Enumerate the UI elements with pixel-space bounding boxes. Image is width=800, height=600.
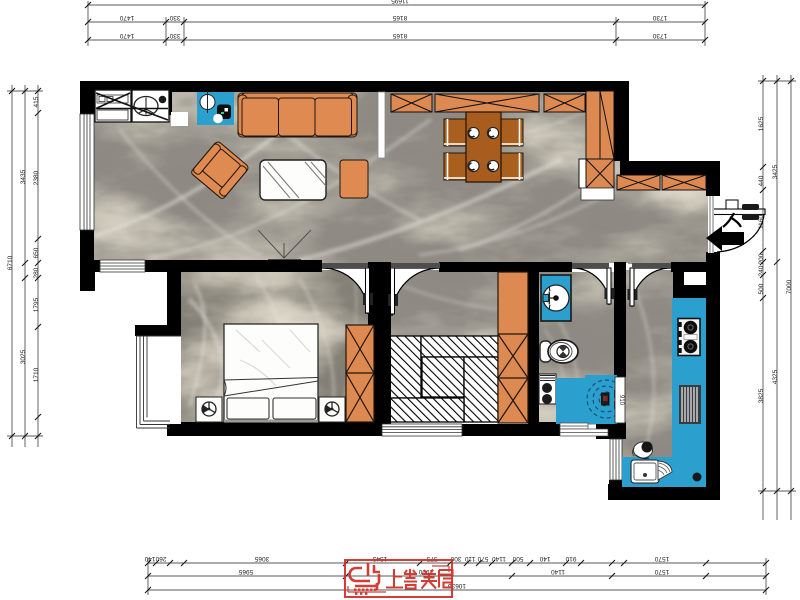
svg-text:3425: 3425 (772, 164, 779, 179)
svg-text:1625: 1625 (758, 116, 765, 131)
svg-text:8165: 8165 (392, 14, 407, 21)
svg-text:140: 140 (539, 555, 550, 562)
svg-text:1470: 1470 (119, 32, 134, 39)
svg-text:3825: 3825 (758, 388, 765, 403)
svg-text:200: 200 (758, 253, 765, 264)
svg-text:2380: 2380 (33, 170, 40, 185)
svg-text:910: 910 (618, 395, 624, 406)
svg-text:110: 110 (464, 555, 475, 562)
svg-text:1730: 1730 (652, 14, 667, 21)
svg-text:500: 500 (758, 283, 765, 294)
svg-text:500: 500 (512, 555, 523, 562)
svg-text:415: 415 (33, 96, 40, 107)
svg-text:4325: 4325 (772, 369, 779, 384)
svg-text:1470: 1470 (119, 14, 134, 21)
svg-text:3435: 3435 (20, 169, 27, 184)
svg-text:330: 330 (169, 14, 180, 21)
svg-text:140: 140 (144, 555, 155, 562)
svg-text:5965: 5965 (238, 568, 253, 575)
svg-text:1795: 1795 (33, 297, 40, 312)
svg-text:1730: 1730 (652, 32, 667, 39)
svg-text:570: 570 (477, 555, 488, 562)
svg-text:240: 240 (758, 265, 765, 276)
svg-text:1160: 1160 (758, 215, 765, 229)
svg-text:440: 440 (758, 175, 765, 186)
svg-text:650: 650 (33, 247, 40, 258)
svg-text:1570: 1570 (654, 568, 669, 575)
svg-text:1710: 1710 (33, 367, 40, 382)
svg-text:3025: 3025 (20, 349, 27, 364)
svg-text:11695: 11695 (391, 0, 409, 4)
svg-text:1140: 1140 (492, 555, 506, 562)
svg-text:3065: 3065 (254, 555, 269, 562)
svg-text:910: 910 (565, 555, 576, 562)
svg-text:6710: 6710 (7, 255, 14, 270)
svg-text:280: 280 (33, 267, 40, 278)
svg-text:8165: 8165 (392, 32, 407, 39)
svg-text:7000: 7000 (786, 279, 793, 294)
svg-text:1570: 1570 (654, 555, 669, 562)
svg-text:330: 330 (169, 32, 180, 39)
svg-text:260: 260 (155, 555, 166, 562)
svg-text:1140: 1140 (551, 568, 565, 575)
